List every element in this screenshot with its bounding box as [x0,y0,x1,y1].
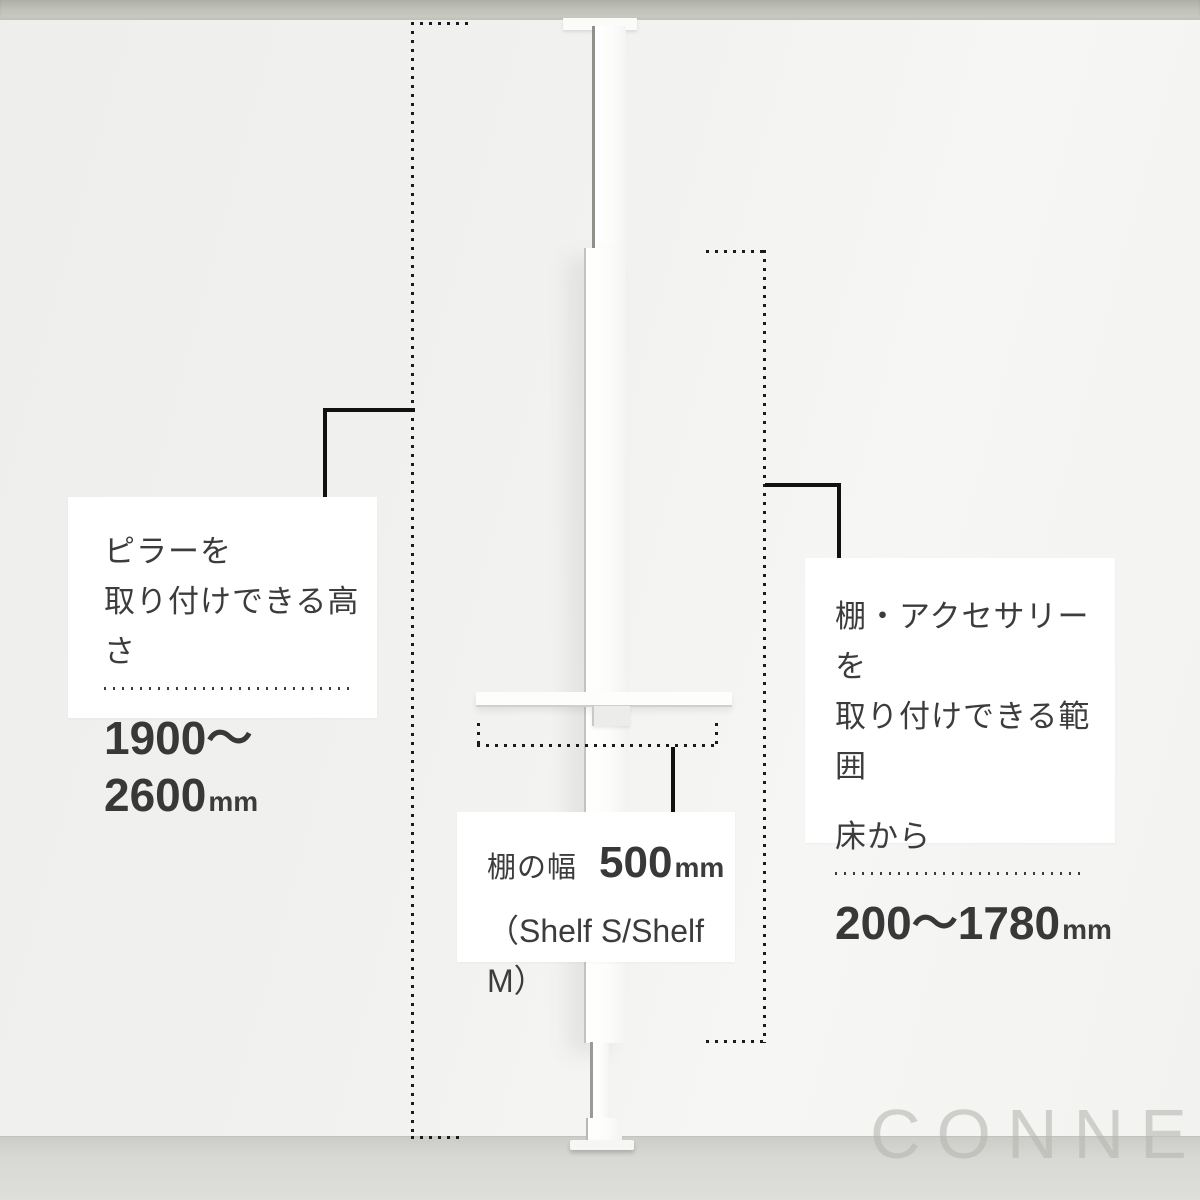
pole-base-plate [570,1140,634,1150]
shelf-width-connector-vertical [671,747,675,813]
pillar-height-label-line1: ピラーを [104,527,377,577]
ceiling [0,0,1200,20]
pillar-height-label-line2: 取り付けできる高さ [104,577,377,677]
pillar-height-annotation: ピラーを 取り付けできる高さ 1900〜2600mm [68,497,377,718]
shelf-width-guide-horizontal [477,744,718,747]
pillar-height-connector-horizontal [323,408,415,412]
pole-upper-rod [592,26,626,250]
pillar-height-guide-bottom-arm [411,1136,460,1139]
shelf-width-unit: mm [674,852,724,883]
accessory-range-separator [835,872,1087,875]
pillar-height-unit: mm [208,786,258,817]
shelf-width-label: 棚の幅 [487,852,577,884]
accessory-range-annotation: 棚・アクセサリーを 取り付けできる範囲 床から 200〜1780mm [805,558,1115,843]
accessory-range-guide-top-arm [706,250,766,253]
accessory-range-guide-bottom-arm [706,1040,766,1043]
pillar-height-value-row: 1900〜2600mm [104,702,377,822]
shelf-width-annotation: 棚の幅500mm （Shelf S/Shelf M） [457,812,735,962]
shelf-width-value: 500 [599,838,672,887]
pole-lower-rod [590,1042,609,1120]
pillar-height-connector-vertical [323,408,327,498]
shelf-width-value-row: 棚の幅500mm [487,838,735,888]
pillar-height-guide-top-arm [411,22,474,25]
connect-watermark: CONNECT [870,1094,1200,1174]
shelf-bracket [592,706,630,726]
product-dimension-diagram: ピラーを 取り付けできる高さ 1900〜2600mm 棚・アクセサリーを 取り付… [0,0,1200,1200]
accessory-range-value: 200〜1780 [835,897,1060,949]
accessory-range-connector-vertical [837,483,841,559]
accessory-range-label-line3: 床から [835,812,1115,862]
shelf [476,692,732,707]
pillar-height-guide-vertical [411,22,414,1139]
shelf-width-note: （Shelf S/Shelf M） [487,906,735,1006]
accessory-range-connector-horizontal [765,483,841,487]
accessory-range-label-line2: 取り付けできる範囲 [835,692,1115,792]
accessory-range-unit: mm [1062,914,1112,945]
pillar-height-separator [104,687,352,690]
accessory-range-guide-vertical [763,250,766,1043]
pole-foot-sleeve [586,1118,622,1142]
accessory-range-value-row: 200〜1780mm [835,887,1115,953]
accessory-range-label-line1: 棚・アクセサリーを [835,592,1115,692]
